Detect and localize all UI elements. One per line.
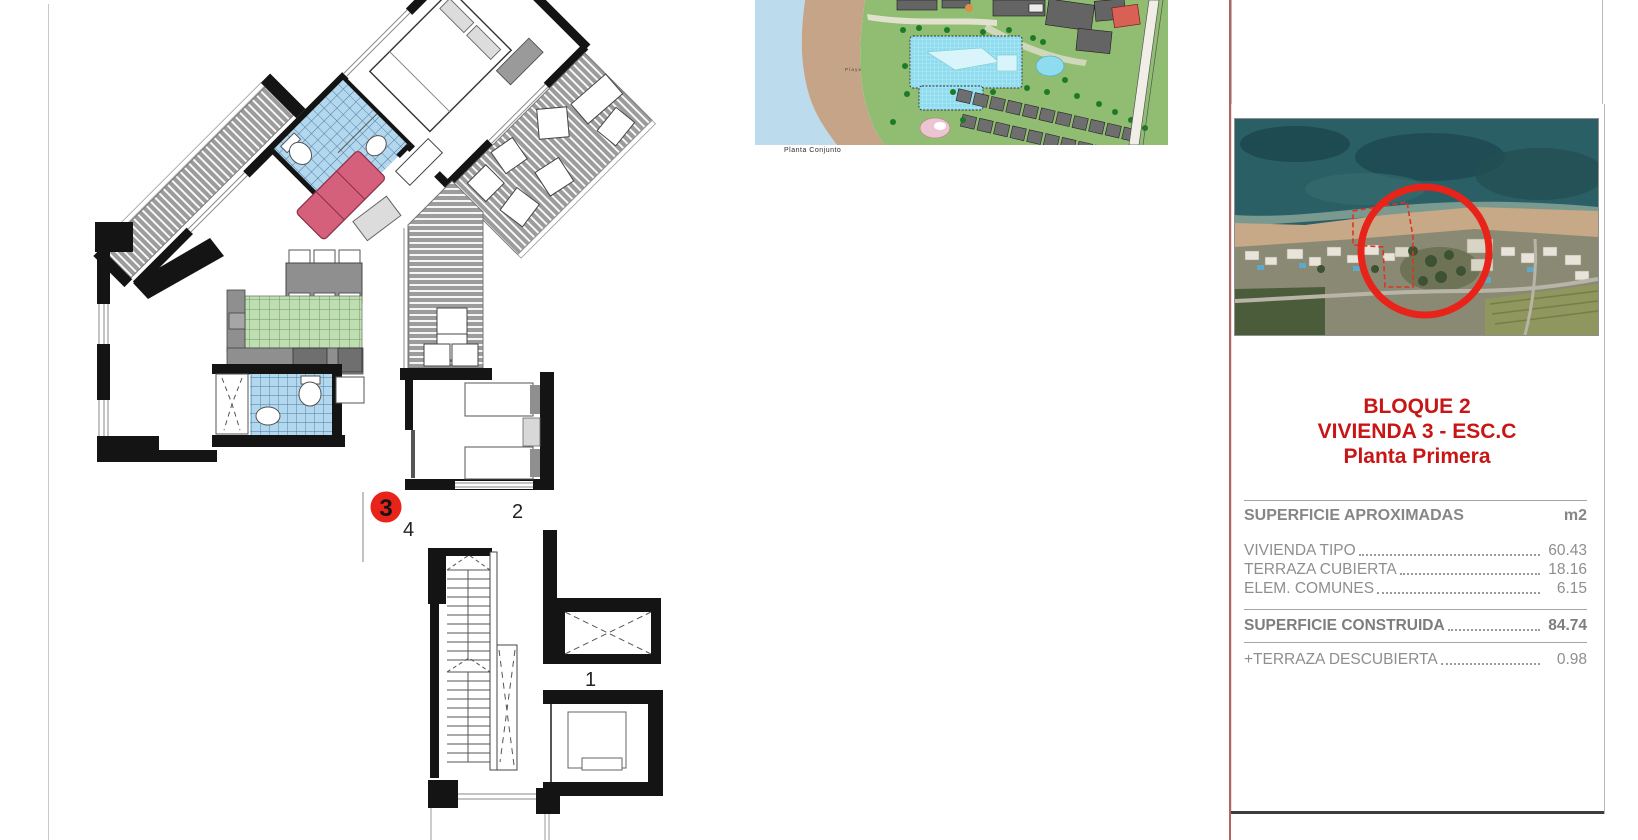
floor-plan-sheet: { "floor_plan": { "marker_number": "3", …	[0, 0, 1638, 840]
dot-leader	[1400, 573, 1540, 575]
sink-icon	[256, 407, 280, 425]
aerial-photo	[1234, 118, 1599, 336]
panel-title: BLOQUE 2 VIVIENDA 3 - ESC.C Planta Prime…	[1231, 394, 1603, 469]
elevator	[543, 530, 661, 664]
panel-top-box	[1231, 0, 1603, 110]
unit-marker-number: 3	[379, 495, 392, 522]
site-plan-caption: Planta Conjunto	[784, 147, 841, 154]
dot-leader	[1377, 592, 1540, 594]
beach-label: Playa	[845, 67, 862, 72]
label-landing: 1	[585, 669, 596, 691]
window	[96, 304, 111, 344]
surface-table: SUPERFICIE APROXIMADAS m2 VIVIENDA TIPO …	[1244, 500, 1587, 669]
bottom-walls	[428, 780, 560, 840]
red-building	[1112, 4, 1141, 27]
surface-row: VIVIENDA TIPO 60.43	[1244, 541, 1587, 560]
floor-plan-drawing: 3 4 2 1	[0, 0, 700, 840]
bathroom-2	[212, 364, 345, 447]
pond	[920, 118, 950, 138]
title-unit: VIVIENDA 3 - ESC.C	[1231, 419, 1603, 444]
surfaces-unit: m2	[1564, 507, 1587, 525]
title-block: BLOQUE 2	[1231, 394, 1603, 419]
window	[455, 481, 533, 489]
title-floor: Planta Primera	[1231, 444, 1603, 469]
surface-row: ELEM. COMUNES 6.15	[1244, 579, 1587, 598]
extra-row: +TERRAZA DESCUBIERTA 0.98	[1244, 650, 1587, 669]
stair-treads	[447, 555, 490, 762]
surface-row: TERRAZA CUBIERTA 18.16	[1244, 560, 1587, 579]
bed	[465, 447, 540, 479]
divider	[1244, 500, 1587, 501]
bed	[465, 383, 540, 416]
label-hall: 4	[403, 519, 414, 541]
bedroom-2	[400, 368, 554, 490]
window	[96, 400, 111, 436]
machine-room	[543, 690, 663, 796]
kitchen	[227, 290, 363, 374]
site-plan: Playa	[747, 0, 1168, 145]
dot-leader	[1448, 629, 1540, 631]
toilet-icon	[299, 376, 321, 406]
nightstand	[523, 418, 540, 446]
hall-closet	[336, 377, 364, 403]
door	[411, 430, 415, 478]
shower	[216, 374, 248, 434]
staircase	[428, 548, 517, 778]
label-room2: 2	[512, 501, 523, 523]
orange-tree	[965, 4, 973, 12]
stair-arrow	[497, 645, 517, 770]
dot-leader	[1441, 663, 1540, 665]
upper-wing	[91, 0, 663, 471]
total-row: SUPERFICIE CONSTRUIDA 84.74	[1244, 616, 1587, 635]
dot-leader	[1359, 554, 1540, 556]
divider	[1244, 609, 1587, 610]
divider	[1244, 642, 1587, 643]
surfaces-header: SUPERFICIE APROXIMADAS	[1244, 507, 1464, 525]
unit-marker: 3	[371, 492, 402, 523]
panel-bottom-border	[1231, 811, 1604, 814]
